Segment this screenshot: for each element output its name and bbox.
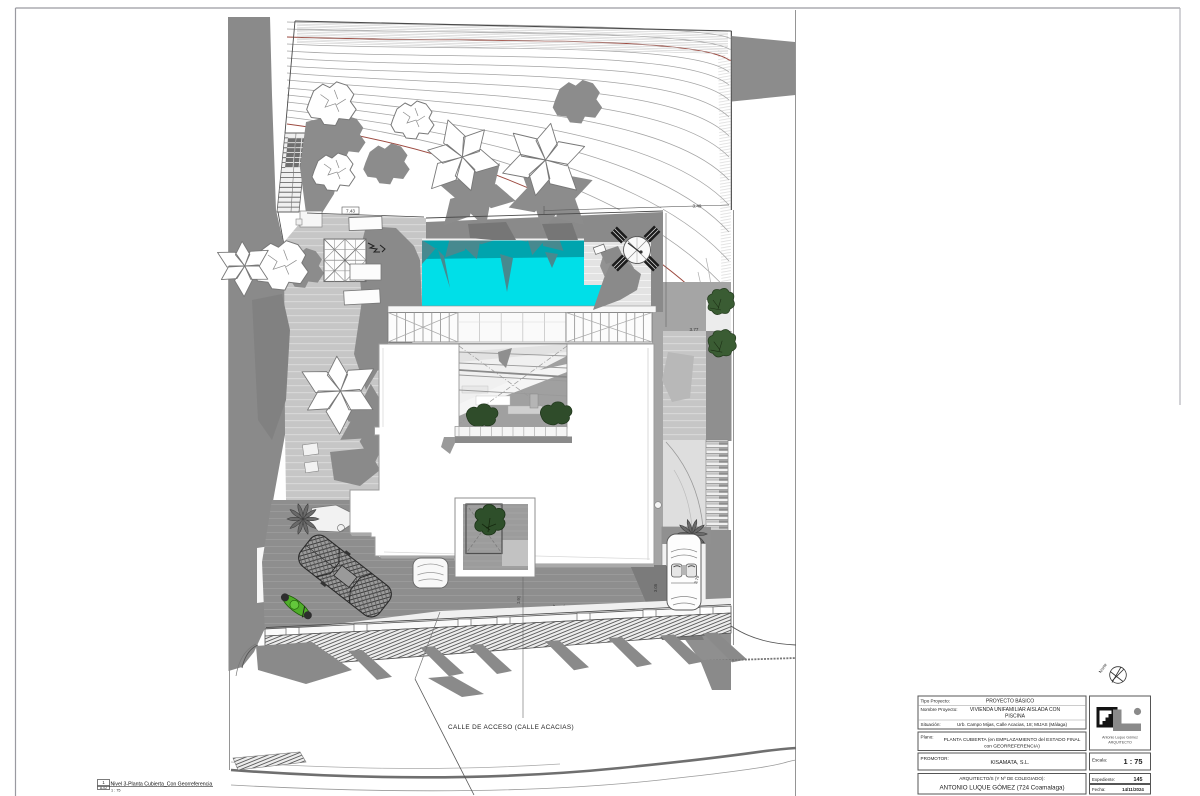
svg-text:PISCINA: PISCINA	[1005, 714, 1026, 720]
svg-text:PROMOTOR:: PROMOTOR:	[921, 756, 949, 761]
svg-text:Nombre Proyecto:: Nombre Proyecto:	[921, 707, 958, 712]
svg-text:Plano:: Plano:	[921, 735, 934, 740]
svg-text:Tipo Proyecto:: Tipo Proyecto:	[921, 699, 950, 704]
svg-text:7.43: 7.43	[346, 209, 355, 214]
svg-text:Fecha:: Fecha:	[1092, 787, 1105, 792]
svg-text:Urb. Campo Mijas, Calle Acacia: Urb. Campo Mijas, Calle Acacias, 18; MIJ…	[957, 722, 1068, 727]
svg-text:3.05: 3.05	[653, 583, 658, 592]
svg-text:1 : 75: 1 : 75	[1124, 757, 1143, 766]
svg-text:3.77: 3.77	[690, 327, 699, 332]
svg-text:3.49: 3.49	[693, 204, 702, 209]
svg-text:ARQUITECTO/S (Y Nº DE COLEGIAD: ARQUITECTO/S (Y Nº DE COLEGIADO):	[959, 776, 1044, 781]
svg-text:con GEORREFERENCIA): con GEORREFERENCIA)	[984, 744, 1040, 750]
svg-text:Situación:: Situación:	[921, 722, 941, 727]
svg-text:ARQUITECTO: ARQUITECTO	[1108, 741, 1132, 745]
svg-text:CALLE DE ACCESO (CALLE ACACIAS: CALLE DE ACCESO (CALLE ACACIAS)	[448, 724, 574, 731]
svg-text:1.91: 1.91	[516, 595, 521, 604]
svg-text:14/11/2024: 14/11/2024	[1122, 787, 1144, 792]
svg-text:ANTONIO LUQUE GÓMEZ (724 Coama: ANTONIO LUQUE GÓMEZ (724 Coamalaga)	[939, 785, 1064, 792]
svg-text:KISAMATA, S.L.: KISAMATA, S.L.	[990, 760, 1029, 766]
svg-text:Escala:: Escala:	[1092, 758, 1107, 763]
svg-text:Antonio Luque Gómez: Antonio Luque Gómez	[1102, 736, 1138, 740]
svg-text:VIVIENDA UNIFAMILIAR AISLADA C: VIVIENDA UNIFAMILIAR AISLADA CON	[970, 707, 1061, 713]
svg-text:PLANTA CUBIERTA (en EMPLAZAMIE: PLANTA CUBIERTA (en EMPLAZAMIENTO del ES…	[944, 737, 1081, 743]
svg-text:PROYECTO BÁSICO: PROYECTO BÁSICO	[986, 698, 1034, 705]
svg-text:Expediente:: Expediente:	[1092, 777, 1115, 782]
svg-text:145: 145	[1134, 777, 1143, 783]
svg-text:1 : 75: 1 : 75	[111, 789, 121, 793]
